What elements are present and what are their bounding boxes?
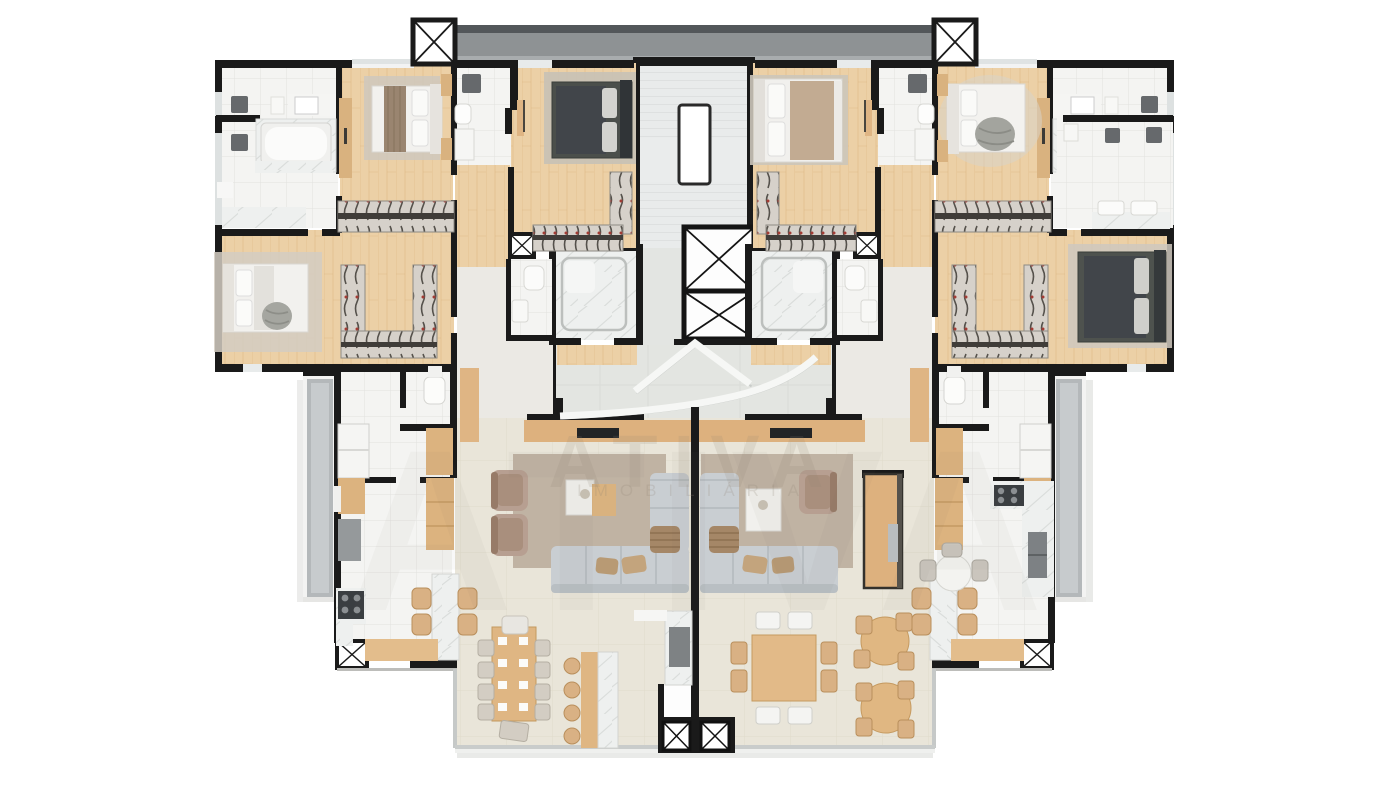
svg-text:IMOBILIÁRIA: IMOBILIÁRIA [577,481,811,500]
